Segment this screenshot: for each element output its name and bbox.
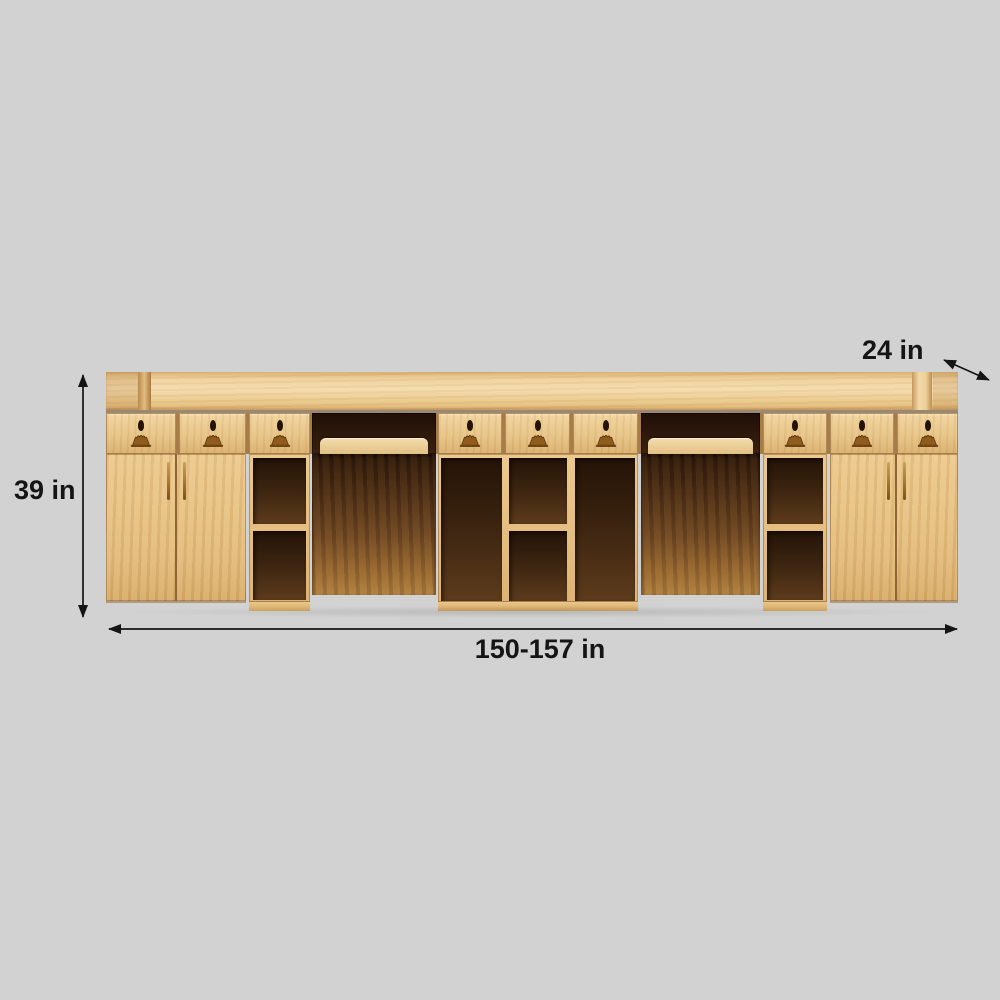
keyhole-icon [138,420,144,431]
keyboard-tray [320,438,428,454]
door-cabinet-left [106,454,246,601]
drawer [438,413,502,454]
depth-dimension-label: 24 in [862,337,924,364]
keyhole-icon [925,420,931,431]
desk-recess [312,413,436,454]
counter-left-post [138,372,151,410]
keyhole-icon [277,420,283,431]
drawer [830,413,894,454]
door-seam [175,454,177,601]
shelf-cubby [575,458,635,601]
crown-handle-icon [593,431,619,448]
panel-grain [641,454,760,595]
shelf-cubby [767,531,823,600]
keyhole-icon [467,420,473,431]
counter-top [106,372,958,410]
crown-handle-icon [128,431,154,448]
counter-left-endcap [106,372,138,410]
keyhole-icon [859,420,865,431]
reception-desk [106,372,958,612]
keyhole-icon [792,420,798,431]
height-dimension-arrow [75,371,91,621]
door-handle [903,462,906,500]
door-handle [167,462,170,500]
drawer [106,413,176,454]
depth-dimension-arrow [936,352,998,388]
door-grain [830,454,958,601]
drawer [179,413,246,454]
door-cabinet-right [830,454,958,601]
keyhole-icon [535,420,541,431]
crown-handle-icon [267,431,293,448]
keyhole-icon [210,420,216,431]
drawer [505,413,570,454]
shelf-cubby [441,458,502,601]
crown-handle-icon [200,431,226,448]
keyhole-icon [603,420,609,431]
height-dimension-label: 39 in [14,477,76,504]
drawer-row [106,413,958,454]
dimension-diagram: 39 in 150-157 in 24 in [0,0,1000,1000]
drawer [573,413,638,454]
drawer [763,413,827,454]
crown-handle-icon [915,431,941,448]
counter-grain [106,372,958,410]
width-dimension-label: 150-157 in [400,636,680,663]
panel-grain [312,454,436,595]
crown-handle-icon [782,431,808,448]
crown-handle-icon [849,431,875,448]
floor-shadow [116,606,948,618]
center-shelf-block [438,454,638,611]
shelf-cubby [767,458,823,524]
drawer [249,413,310,454]
open-shelf-column [249,454,310,611]
counter-right-post [912,372,932,410]
keyboard-tray [648,438,753,454]
drawer [897,413,958,454]
shelf-cubby [509,531,567,601]
shelf-cubby [253,458,306,524]
cabinet-body [106,454,958,612]
under-desk-panel [641,454,760,595]
shelf-cubby [253,531,306,600]
door-handle [887,462,890,500]
shelf-cubby [509,458,567,524]
crown-handle-icon [457,431,483,448]
desk-recess [641,413,760,454]
crown-handle-icon [525,431,551,448]
open-shelf-column [763,454,827,611]
door-handle [183,462,186,500]
under-desk-panel [312,454,436,595]
door-seam [895,454,897,601]
